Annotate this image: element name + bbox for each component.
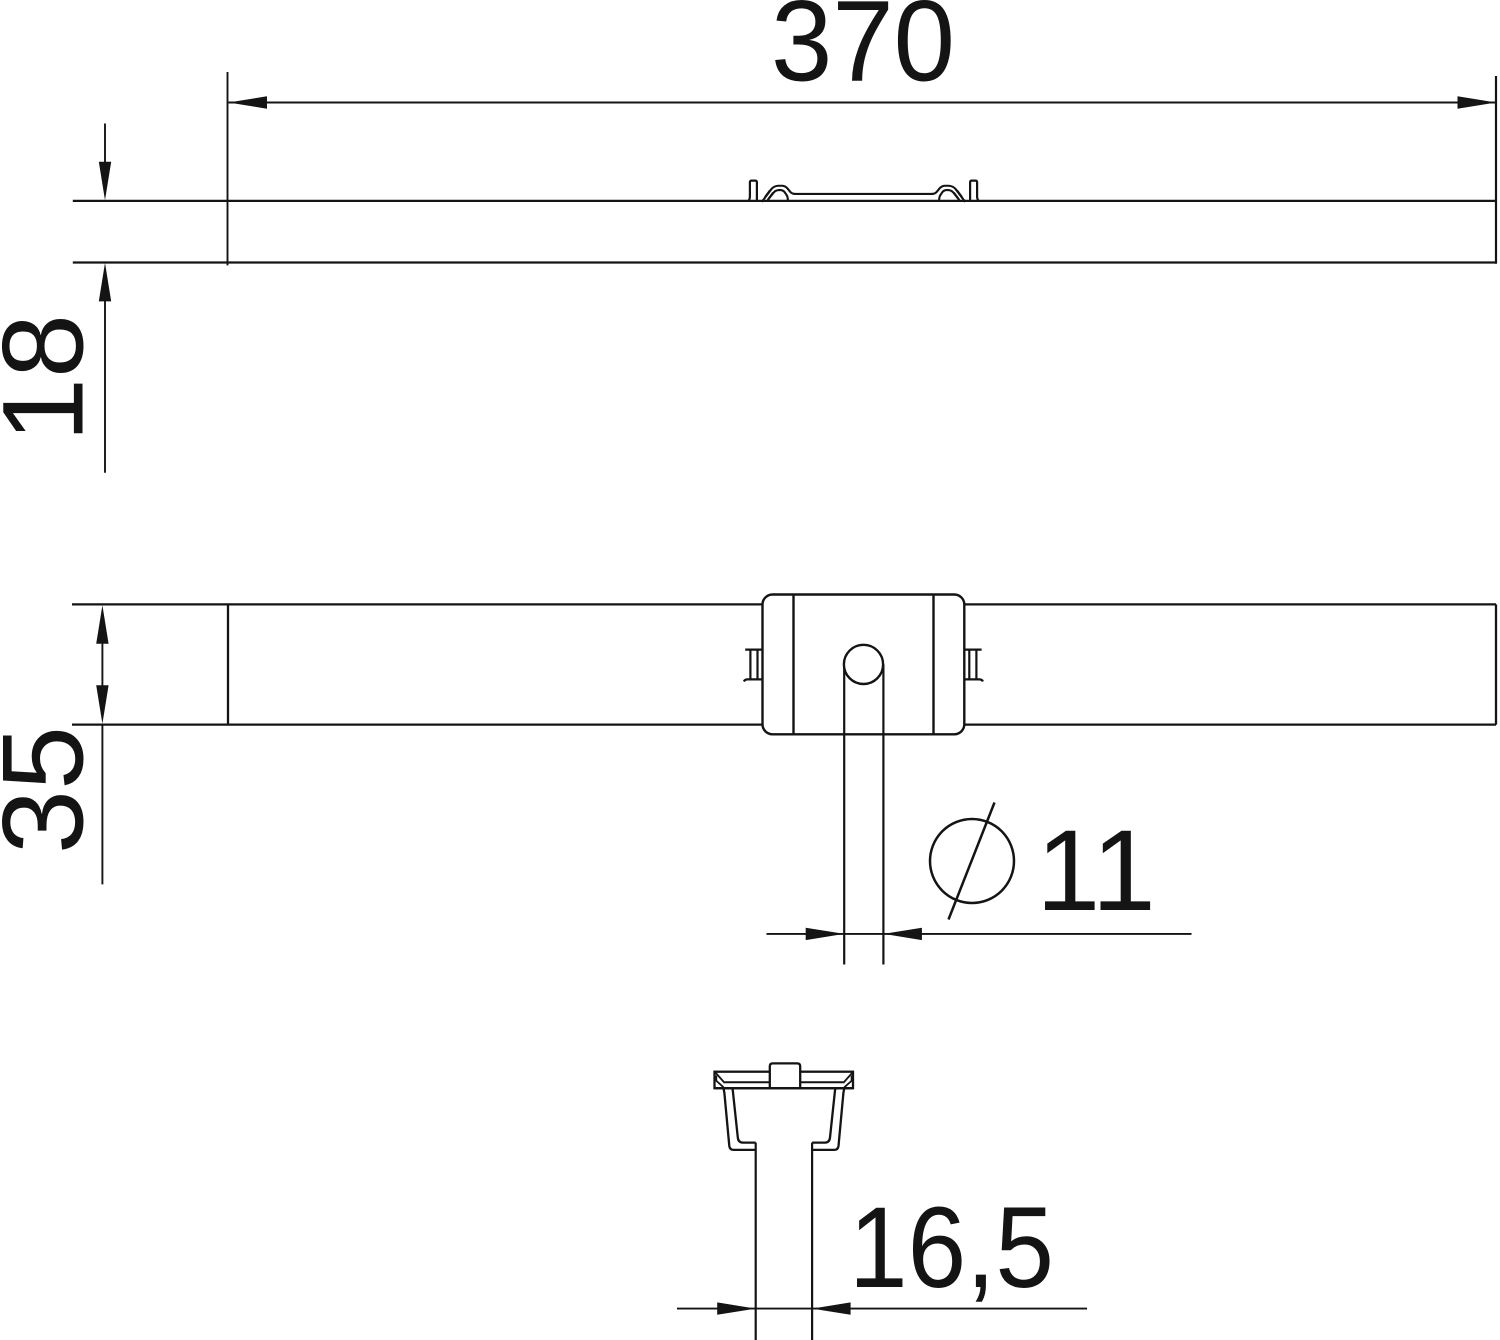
svg-text:16,5: 16,5 <box>849 1184 1054 1312</box>
svg-text:370: 370 <box>771 0 955 106</box>
svg-text:18: 18 <box>0 314 108 442</box>
svg-text:11: 11 <box>1036 807 1155 935</box>
svg-text:35: 35 <box>0 726 108 854</box>
